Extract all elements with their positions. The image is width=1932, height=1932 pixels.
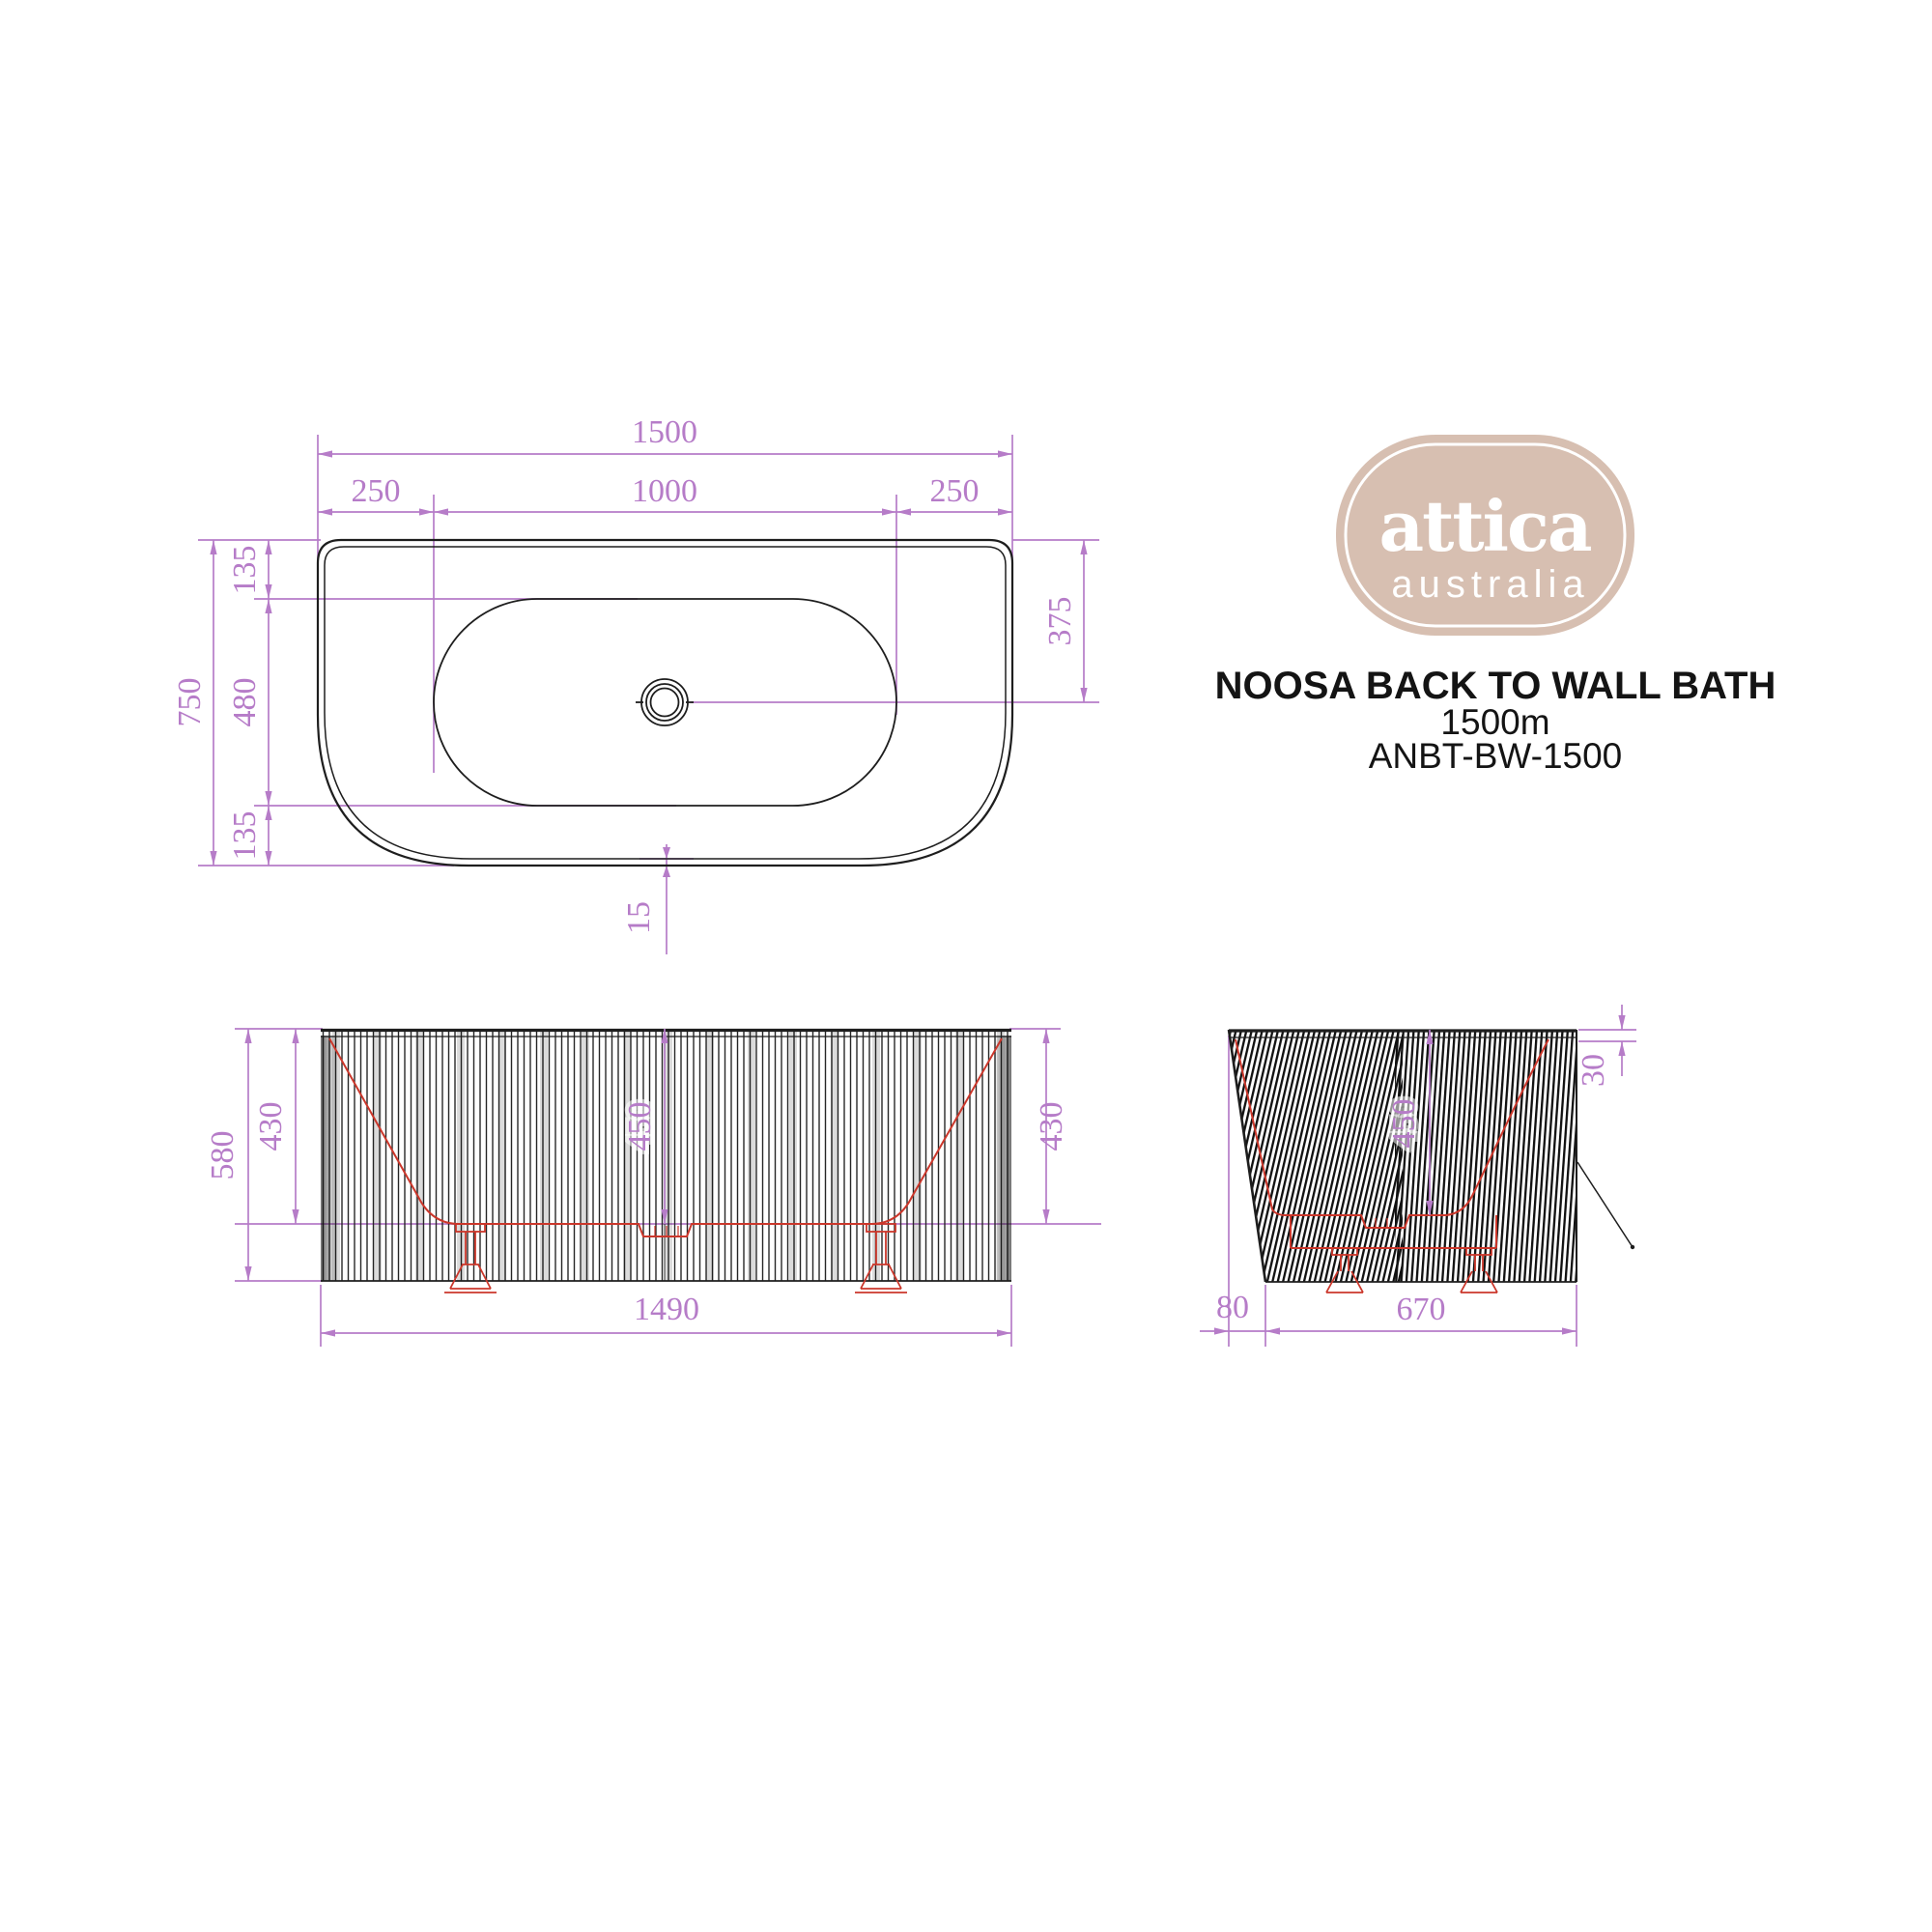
dim-front-width: 1490	[634, 1292, 699, 1327]
dim-drain-offset: 375	[1042, 597, 1078, 646]
dim-overall-depth: 750	[172, 678, 208, 727]
sheet-background	[0, 0, 1932, 1932]
technical-drawing-canvas: 1500 250 1000 250 750 135 480 135 375 15	[0, 0, 1932, 1932]
brand-logo: attica australia	[1336, 435, 1634, 636]
front-view-body	[321, 1031, 1011, 1282]
dim-side-inner-center: 450	[1386, 1099, 1422, 1149]
dim-back-margin: 135	[227, 546, 263, 595]
dim-overall-height: 580	[205, 1131, 241, 1180]
product-title: NOOSA BACK TO WALL BATH	[1215, 665, 1776, 707]
logo-name: attica	[1378, 485, 1590, 567]
dim-base-width: 670	[1397, 1292, 1446, 1327]
dim-overall-width: 1500	[632, 414, 697, 450]
drawing-sheet: 1500 250 1000 250 750 135 480 135 375 15	[0, 0, 1932, 1932]
dim-lip-drop: 30	[1576, 1054, 1611, 1087]
dim-well-width: 1000	[632, 473, 697, 509]
dim-edge-right: 250	[930, 473, 980, 509]
side-view-body	[1219, 1024, 1583, 1290]
dim-inner-left: 430	[253, 1102, 289, 1151]
dim-back-offset: 80	[1216, 1290, 1249, 1325]
dim-inner-center: 450	[622, 1102, 658, 1151]
dim-inner-right: 430	[1034, 1102, 1069, 1151]
dim-rim-thickness: 15	[621, 901, 657, 934]
logo-subtitle: australia	[1391, 563, 1589, 606]
dim-front-margin: 135	[227, 811, 263, 861]
dim-well-length: 480	[227, 678, 263, 727]
product-code: ANBT-BW-1500	[1369, 736, 1623, 776]
dim-edge-left: 250	[352, 473, 401, 509]
